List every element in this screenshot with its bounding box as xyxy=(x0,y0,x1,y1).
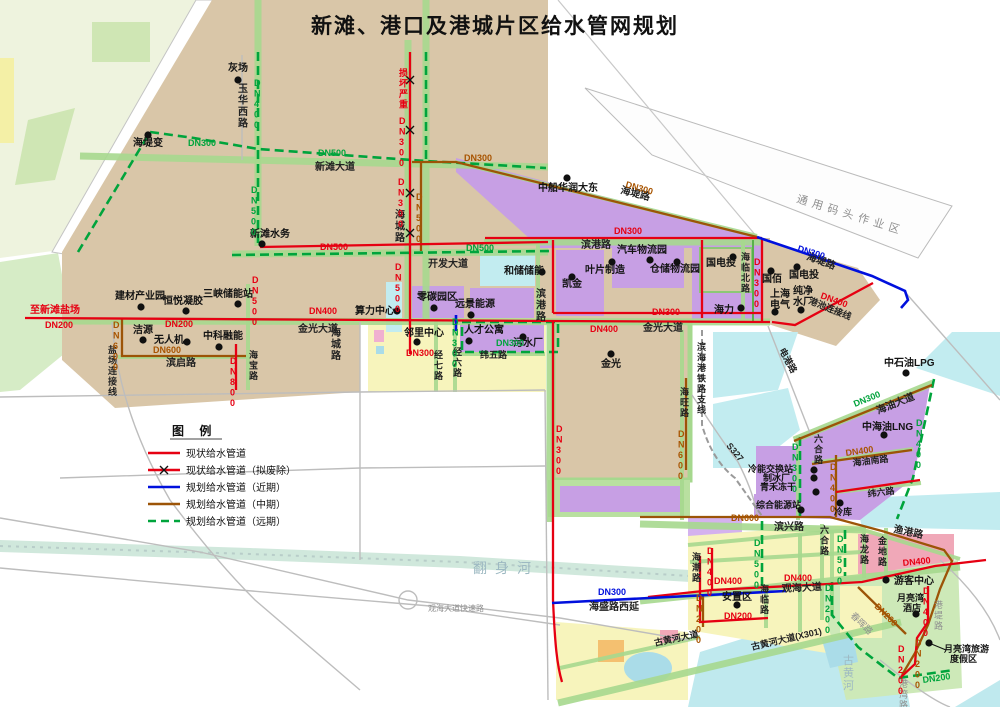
facility-dot xyxy=(607,350,614,357)
map-label: DN300 xyxy=(598,587,626,597)
map-label: 滨启路 xyxy=(166,356,197,369)
map-label: 中海油LNG xyxy=(862,420,913,433)
facility-dot xyxy=(234,76,241,83)
map-label: DN400 xyxy=(916,418,923,470)
map-label: DN500 xyxy=(318,148,346,158)
map-label: 海盛路西延 xyxy=(589,600,640,613)
map-label: DN600 xyxy=(731,513,759,523)
map-label: 六合路 xyxy=(820,524,830,556)
map-label: 邻里中心 xyxy=(404,326,444,339)
map-label: 海龙路 xyxy=(859,533,870,565)
map-label: 损坏严重 xyxy=(398,67,408,110)
planning-map: 灰场海堤变新滩水务中船华润大东建材产业园恒悦凝胶三峡储能站洁源无人机中科融能算力… xyxy=(0,0,1000,707)
facility-dot xyxy=(183,338,190,345)
map-label: 仓储物流园 xyxy=(649,262,700,275)
map-label: 金光 xyxy=(600,357,621,370)
map-label: 酒店 xyxy=(903,602,921,613)
map-label: DN200 xyxy=(165,319,193,329)
map-label: 三峡储能站 xyxy=(203,287,253,300)
legend-label: 规划给水管道（近期） xyxy=(186,481,286,494)
map-label: 纯净 xyxy=(793,284,813,297)
map-label: 纬五路 xyxy=(480,349,508,360)
map-label: 恒悦凝胶 xyxy=(163,294,203,307)
map-label: DN400 xyxy=(784,573,812,583)
map-label: 滨港路 xyxy=(536,287,547,323)
facility-dot xyxy=(836,499,843,506)
facility-dot xyxy=(882,576,889,583)
facility-dot xyxy=(646,256,653,263)
map-label: 玉华西路 xyxy=(238,83,249,130)
map-label: 远景能源 xyxy=(455,297,495,310)
map-label: 开发大道 xyxy=(428,257,468,270)
map-label: 综合能源站 xyxy=(756,499,801,510)
map-label: DN300 xyxy=(188,138,216,148)
map-label: 观海大道快速路 xyxy=(428,603,484,613)
page-title: 新滩、港口及港城片区给水管网规划 xyxy=(311,14,679,38)
map-label: 金地路 xyxy=(877,535,888,567)
legend-label: 规划给水管道（中期） xyxy=(186,498,286,511)
map-canvas: 灰场海堤变新滩水务中船华润大东建材产业园恒悦凝胶三峡储能站洁源无人机中科融能算力… xyxy=(0,0,1000,707)
legend-label: 现状给水管道 xyxy=(186,447,246,460)
facility-dot xyxy=(465,337,472,344)
map-label: 港堤路 xyxy=(934,599,943,631)
facility-dot xyxy=(430,304,437,311)
map-label: 灰场 xyxy=(228,61,248,74)
map-label: 洁源 xyxy=(133,323,153,336)
facility-dot xyxy=(812,488,819,495)
legend: 图 例 现状给水管道 现状给水管道（拟废除） 规划给水管道（近期） 规划给水管道… xyxy=(148,423,296,528)
map-label: DN400 xyxy=(714,576,742,586)
map-label: 金光大道 xyxy=(642,321,683,334)
map-label: 凯金 xyxy=(562,277,583,290)
facility-dot xyxy=(563,174,570,181)
map-label: 青禾冻干 xyxy=(760,481,796,492)
map-label: 海宝路 xyxy=(249,349,259,381)
facility-dot xyxy=(258,240,265,247)
facility-dot xyxy=(139,336,146,343)
map-label: 翻身河 xyxy=(473,560,539,576)
map-label: DN300 xyxy=(652,307,680,317)
map-label: 算力中心 xyxy=(354,304,395,317)
map-label: 上海 xyxy=(770,287,790,300)
facility-dot xyxy=(810,474,817,481)
map-label: 海力 xyxy=(714,303,734,316)
map-label: 人才公寓 xyxy=(464,323,504,336)
map-label: 古黄河 xyxy=(843,654,854,692)
map-label: 海堤变 xyxy=(133,136,163,149)
legend-label: 现状给水管道（拟废除） xyxy=(186,464,296,477)
facility-dot xyxy=(810,466,817,473)
map-label: DN200 xyxy=(724,611,752,621)
facility-dot xyxy=(902,369,909,376)
map-label: DN500 xyxy=(320,242,348,252)
map-label: 新滩大道 xyxy=(315,160,355,173)
facility-dot xyxy=(413,338,420,345)
map-label: DN300 xyxy=(464,153,492,163)
map-label: 海临路 xyxy=(760,583,770,615)
map-label: 中石油LPG xyxy=(884,356,935,369)
map-label: 滨港路 xyxy=(581,238,612,251)
map-label: 至新滩盐场 xyxy=(30,303,80,316)
facility-dot xyxy=(182,307,189,314)
map-label: 国电投 xyxy=(789,268,819,281)
map-label: 电气 xyxy=(770,298,790,311)
map-label: 汽车物流园 xyxy=(617,243,667,256)
map-label: 经七路 xyxy=(434,349,444,381)
map-label: DN400 xyxy=(590,324,618,334)
map-label: DN400 xyxy=(309,306,337,316)
legend-label: 规划给水管道（远期） xyxy=(186,515,286,528)
map-label: DN500 xyxy=(466,243,494,253)
map-label: 月亮湾 xyxy=(896,592,924,603)
facility-dot xyxy=(137,303,144,310)
map-label: 中船华润大东 xyxy=(538,181,598,194)
map-label: 度假区 xyxy=(950,653,977,664)
map-label: 建材产业园 xyxy=(114,289,165,302)
map-label: DN300 xyxy=(614,226,642,236)
map-label: 金光大道 xyxy=(297,322,338,335)
map-label: 安置区 xyxy=(722,590,752,603)
map-label: 和储储能 xyxy=(503,264,544,277)
map-label: 海潮路 xyxy=(692,551,702,583)
map-label: 国电投 xyxy=(706,256,736,269)
map-label: 滨海港铁路支线 xyxy=(696,341,707,415)
map-label: DN600 xyxy=(153,345,181,355)
map-label: 月亮湾旅游 xyxy=(943,643,989,654)
map-label: DN300 xyxy=(496,338,524,348)
facility-dot xyxy=(467,311,474,318)
facility-dot xyxy=(737,304,744,311)
map-label: 零碳园区 xyxy=(416,290,457,303)
map-label: 新滩水务 xyxy=(250,227,291,240)
map-label: DN300 xyxy=(406,348,434,358)
map-label: 冷库 xyxy=(834,506,852,517)
map-label: DN200 xyxy=(45,320,73,330)
map-label: 国佰 xyxy=(762,272,782,285)
map-label: 海旺路 xyxy=(680,386,690,418)
map-label: 六合路 xyxy=(814,433,824,465)
facility-dot xyxy=(234,300,241,307)
map-label: 叶片制造 xyxy=(585,263,626,276)
map-label: 滨兴路 xyxy=(774,520,805,533)
map-label: 中科融能 xyxy=(203,329,243,342)
facility-dot xyxy=(215,343,222,350)
map-label: 海临北路 xyxy=(741,251,751,294)
legend-title: 图 例 xyxy=(172,423,217,438)
